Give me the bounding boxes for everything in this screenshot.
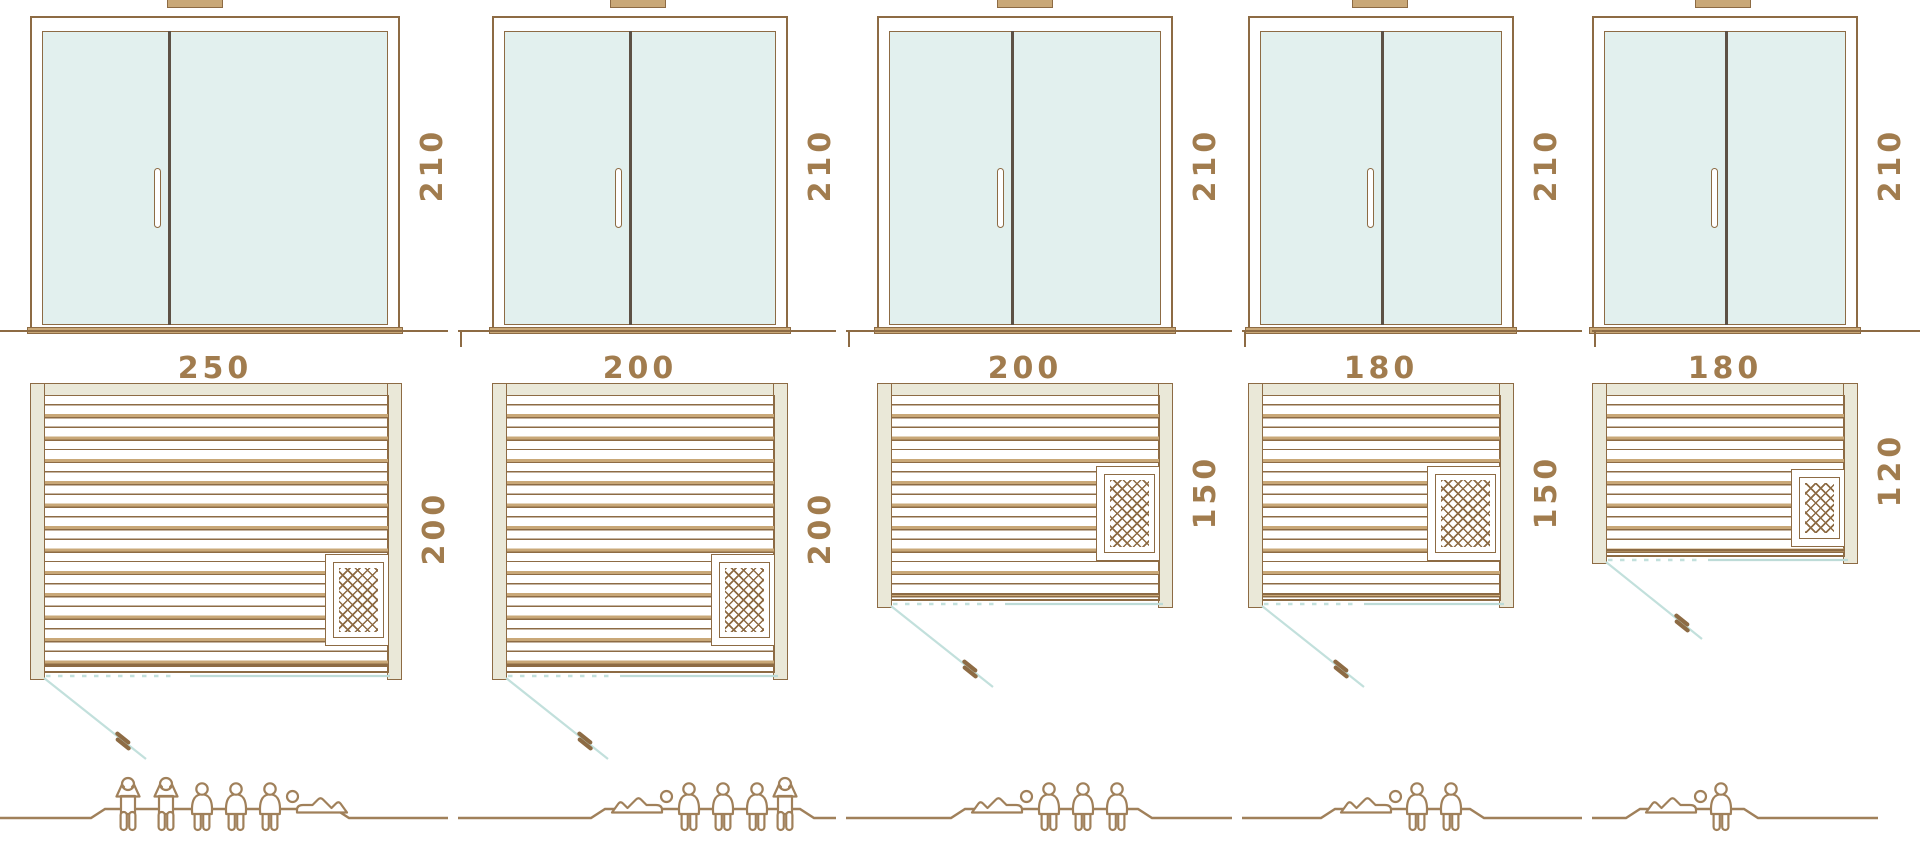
sauna-model-column-5: 180 210 120 [0,0,1920,856]
height-dimension-label: 210 [1872,110,1908,220]
heater [1799,477,1840,539]
door-handle [1711,168,1718,228]
door-glass-left-panel [1604,31,1726,325]
door-open-line [1606,562,1702,639]
sauna-size-diagram: 250 210 200 [0,0,1920,856]
plan-door-handle-icon [1674,616,1691,631]
bench-slats [1606,395,1845,558]
person-lying-icon [1646,791,1706,813]
door-divider-line [1725,31,1728,325]
heater-guard [1791,469,1845,547]
person-sitting-icon [1711,783,1731,830]
door-elevation [1592,16,1858,330]
floor-plan [1592,383,1858,557]
door-swing [1592,555,1920,667]
depth-dimension-label: 120 [1872,415,1908,525]
ground-line [1592,330,1920,332]
heater-mesh-icon [1805,483,1834,533]
ground-step-tick [1594,331,1596,347]
capacity-figures [1592,758,1920,856]
roof-cap [1695,0,1751,8]
bench-profile-line [1592,809,1878,818]
plan-right-wall [1843,383,1858,564]
door-glass-right-panel [1726,31,1846,325]
width-dimension-label: 180 [1670,350,1780,386]
